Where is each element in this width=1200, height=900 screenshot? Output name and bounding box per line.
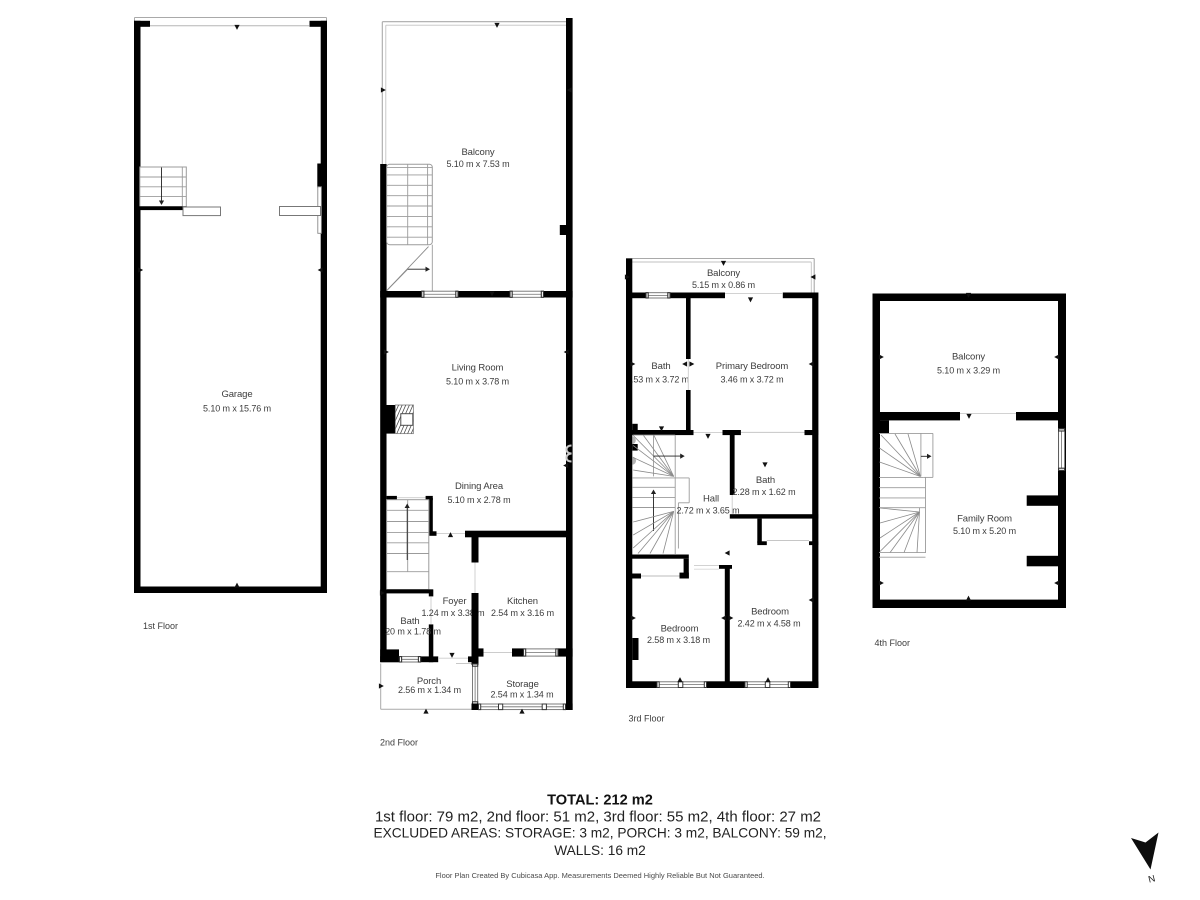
svg-text:Balcony: Balcony [707, 268, 740, 279]
svg-text:5.10 m x 3.78 m: 5.10 m x 3.78 m [446, 377, 509, 387]
svg-text:Bedroom: Bedroom [751, 607, 789, 618]
svg-text:1st floor: 79 m2, 2nd floor: 5: 1st floor: 79 m2, 2nd floor: 51 m2, 3rd … [375, 809, 821, 826]
svg-text:5.10 m x 15.76 m: 5.10 m x 15.76 m [203, 404, 271, 414]
svg-text:2nd Floor: 2nd Floor [380, 738, 418, 748]
svg-text:Garage: Garage [221, 389, 252, 400]
svg-text:Bath: Bath [756, 475, 775, 486]
svg-text:5.10 m x 5.20 m: 5.10 m x 5.20 m [953, 526, 1016, 536]
svg-text:TOTAL: 212 m2: TOTAL: 212 m2 [547, 793, 653, 809]
svg-text:Bath: Bath [400, 616, 419, 627]
svg-text:Floor Plan Created By Cubicasa: Floor Plan Created By Cubicasa App. Meas… [435, 871, 764, 880]
svg-text:Family Room: Family Room [957, 514, 1012, 525]
svg-text:5.10 m x 7.53 m: 5.10 m x 7.53 m [446, 159, 509, 169]
svg-text:1st Floor: 1st Floor [143, 621, 178, 631]
svg-text:2.54 m x 3.16 m: 2.54 m x 3.16 m [491, 608, 554, 618]
svg-text:2.56 m x 1.34 m: 2.56 m x 1.34 m [398, 685, 461, 695]
svg-text:2.54 m x 1.34 m: 2.54 m x 1.34 m [490, 690, 553, 700]
svg-text:Balcony: Balcony [461, 147, 494, 158]
svg-text:Bedroom: Bedroom [661, 624, 699, 635]
svg-text:EXCLUDED AREAS: STORAGE: 3 m2,: EXCLUDED AREAS: STORAGE: 3 m2, PORCH: 3 … [373, 826, 826, 841]
svg-text:Storage: Storage [506, 679, 539, 690]
svg-text:Kitchen: Kitchen [507, 596, 538, 607]
svg-text:Living Room: Living Room [452, 363, 504, 374]
svg-text:WALLS: 16 m2: WALLS: 16 m2 [554, 843, 646, 858]
svg-text:.53 m x 3.72 m: .53 m x 3.72 m [631, 375, 689, 385]
svg-text:2.58 m x 3.18 m: 2.58 m x 3.18 m [647, 635, 710, 645]
svg-text:3.46 m x 3.72 m: 3.46 m x 3.72 m [720, 375, 783, 385]
svg-text:Foyer: Foyer [443, 596, 467, 607]
svg-text:Bath: Bath [651, 361, 670, 372]
svg-text:20 m x 1.78 m: 20 m x 1.78 m [385, 627, 441, 637]
svg-text:5.10 m x 3.29 m: 5.10 m x 3.29 m [937, 366, 1000, 376]
svg-text:2.28 m x 1.62 m: 2.28 m x 1.62 m [732, 487, 795, 497]
svg-text:2.72 m x 3.65 m: 2.72 m x 3.65 m [676, 506, 739, 516]
svg-text:2.42 m x 4.58 m: 2.42 m x 4.58 m [737, 619, 800, 629]
svg-text:Primary Bedroom: Primary Bedroom [716, 361, 789, 372]
svg-text:5.15 m x 0.86 m: 5.15 m x 0.86 m [692, 280, 755, 290]
svg-text:Hall: Hall [703, 494, 719, 505]
svg-text:Balcony: Balcony [952, 352, 985, 363]
svg-text:5.10 m x 2.78 m: 5.10 m x 2.78 m [447, 495, 510, 505]
svg-text:3rd Floor: 3rd Floor [629, 714, 665, 724]
svg-text:4th Floor: 4th Floor [875, 638, 911, 648]
svg-text:Dining Area: Dining Area [455, 481, 504, 492]
